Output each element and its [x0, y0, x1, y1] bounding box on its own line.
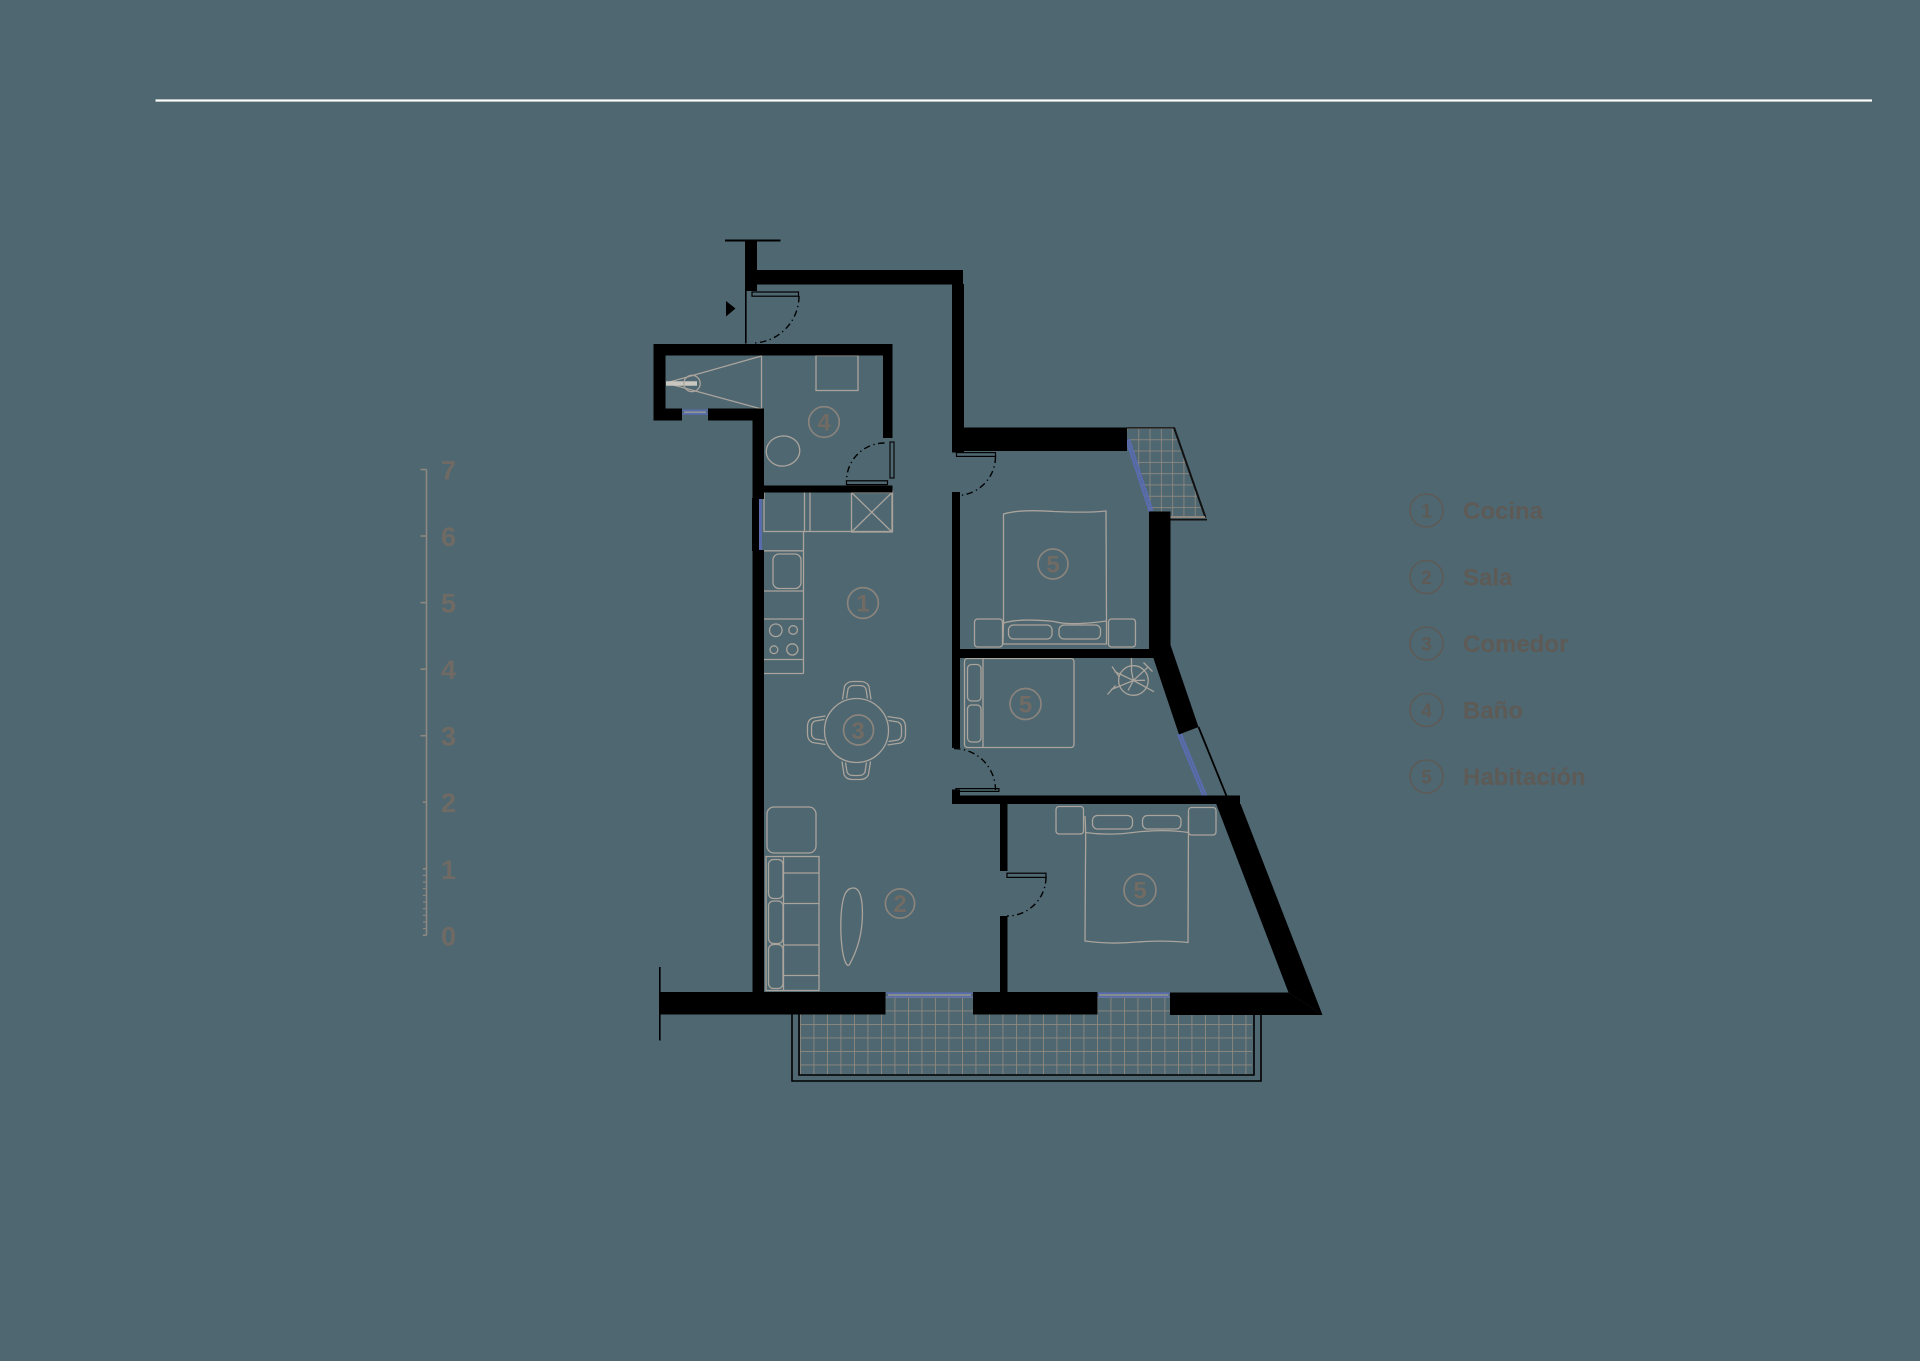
svg-text:3: 3: [441, 722, 456, 752]
svg-text:7: 7: [441, 456, 456, 486]
svg-text:Cocina: Cocina: [1463, 498, 1544, 525]
svg-text:Baño: Baño: [1463, 698, 1523, 725]
svg-text:4: 4: [817, 410, 831, 437]
svg-text:5: 5: [1046, 552, 1059, 579]
svg-text:5: 5: [1019, 692, 1032, 719]
svg-text:5: 5: [441, 589, 456, 619]
svg-text:5: 5: [1421, 768, 1432, 789]
svg-text:1: 1: [441, 855, 456, 885]
svg-text:5: 5: [1133, 878, 1146, 905]
svg-text:4: 4: [1421, 701, 1432, 722]
svg-text:Sala: Sala: [1463, 565, 1513, 592]
svg-text:2: 2: [1421, 568, 1432, 589]
svg-text:3: 3: [1421, 635, 1432, 656]
svg-text:1: 1: [1421, 502, 1432, 523]
svg-text:4: 4: [441, 655, 456, 685]
svg-text:1: 1: [856, 591, 869, 618]
svg-text:2: 2: [441, 788, 456, 818]
svg-text:6: 6: [441, 522, 456, 552]
svg-text:0: 0: [441, 921, 456, 951]
svg-text:Habitación: Habitación: [1463, 764, 1586, 791]
svg-text:Comedor: Comedor: [1463, 631, 1568, 658]
svg-text:3: 3: [851, 718, 864, 745]
svg-text:2: 2: [893, 891, 906, 918]
